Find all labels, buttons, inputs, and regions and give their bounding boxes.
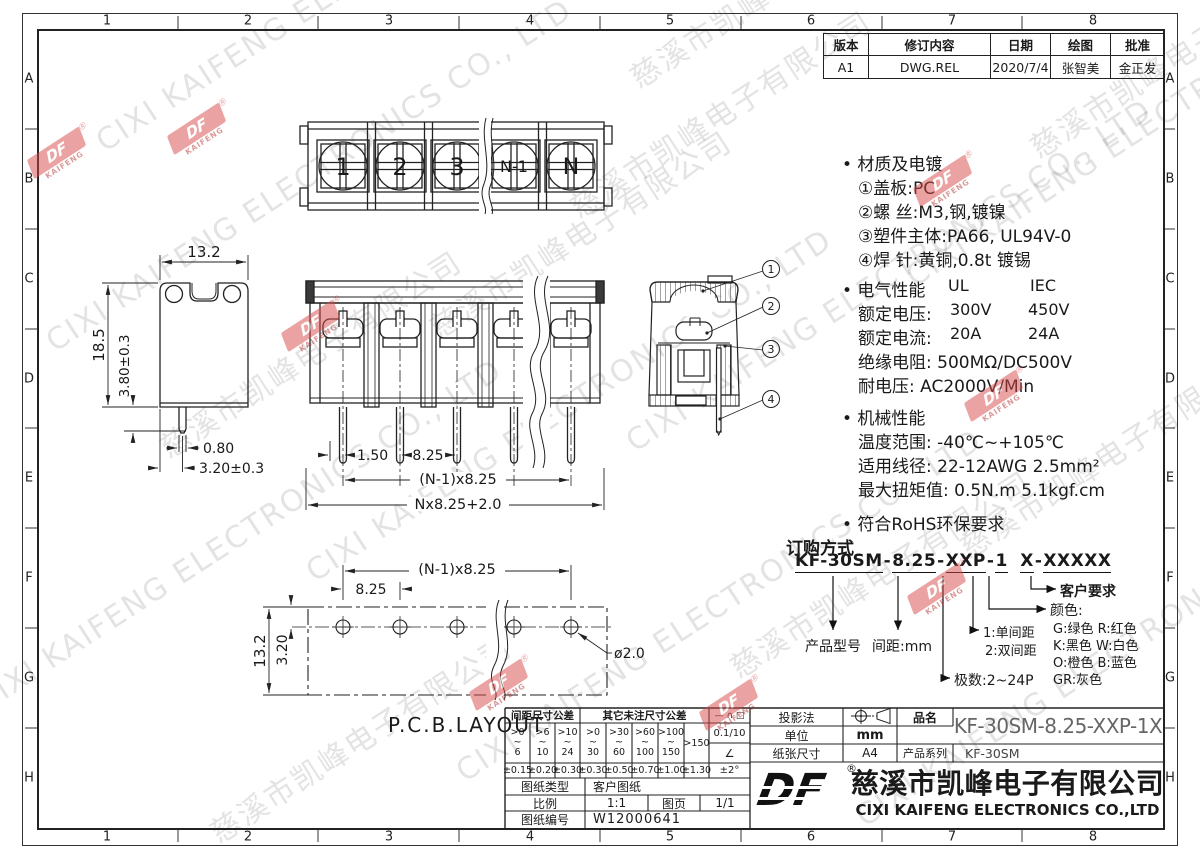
grid-col-label: 4: [526, 830, 534, 845]
grid-col-label: 4: [526, 14, 534, 29]
grid-col-label: 8: [1089, 14, 1097, 29]
range-to: 24: [561, 748, 573, 758]
grid-row-label: E: [1166, 471, 1174, 486]
mechanical-item: 最大扭矩值: 0.5N.m 5.1kgf.cm: [858, 476, 1105, 501]
logo-stripe: [755, 786, 849, 789]
rated-voltage-ul: 300V: [950, 300, 991, 319]
revision-cell: DWG.REL: [869, 56, 991, 78]
ordering-pitch-label: 间距:mm: [872, 636, 932, 656]
grid-row-label: F: [1166, 571, 1173, 586]
engineering-drawing-page: CIXI KAIFENG ELECTRONICS CO., LTD CIXI K…: [0, 0, 1200, 864]
ordering-double-row-label: 2:双间距: [985, 640, 1037, 659]
tolerance-range: >10 ~ 24: [555, 723, 580, 763]
tolerance-value: ±1.00: [658, 763, 684, 778]
drawing-number-label: 图纸编号: [505, 811, 585, 828]
range-to: 10: [536, 748, 548, 758]
revision-table: 版本 修订内容 日期 绘图 批准 A1 DWG.REL 2020/7/4 张智美…: [823, 33, 1165, 79]
code-pitch: 8.25: [892, 551, 936, 573]
grid-col-label: 3: [385, 830, 393, 845]
rated-current-iec: 24A: [1028, 324, 1059, 343]
grid-col-label: 7: [948, 14, 956, 29]
ordering-customer-label: 客户要求: [1060, 581, 1116, 601]
code-row: 1: [995, 551, 1007, 573]
material-item: ④焊 针:黄铜,0.8t 镀锡: [858, 246, 1031, 271]
grid-col-label: 5: [666, 830, 674, 845]
company-name-en: CIXI KAIFENG ELECTRONICS CO.,LTD: [852, 799, 1163, 821]
mechanical-section-title: • 机械性能: [842, 404, 925, 429]
material-item: ③塑件主体:PA66, UL94V-0: [858, 222, 1071, 247]
paper-size-value: A4: [843, 744, 897, 762]
grid-col-label: 6: [807, 14, 815, 29]
grid-row-label: H: [1165, 771, 1175, 786]
grid-row-label: C: [1165, 272, 1174, 287]
tolerance-range: >100 ~ 150: [658, 723, 684, 763]
revision-cell: 2020/7/4: [991, 56, 1051, 78]
grid-col-label: 2: [244, 830, 252, 845]
pitch-tolerance-title: 间距尺寸公差: [505, 708, 580, 723]
tolerance-range: >60 ~ 100: [632, 723, 658, 763]
product-series-label: 产品系列: [897, 744, 953, 762]
code-dash: -: [936, 551, 946, 571]
ordering-model-label: 产品型号: [805, 636, 861, 656]
tolerance-range: >0 ~ 6: [505, 723, 530, 763]
revision-header: 批准: [1111, 34, 1164, 56]
electrical-col-ul: UL: [948, 276, 969, 295]
drawing-type-value: 客户图纸: [585, 778, 758, 795]
grid-row-label: H: [24, 771, 34, 786]
material-section-title: • 材质及电镀: [842, 150, 942, 175]
code-space: [1008, 551, 1020, 571]
unit-value: mm: [843, 726, 897, 744]
code-color: X: [1020, 551, 1034, 573]
grid-row-label: B: [1166, 172, 1175, 187]
rated-voltage-label: 额定电压:: [858, 300, 932, 325]
tolerance-range: >6 ~ 10: [530, 723, 555, 763]
drawing-number-value: W12000641: [585, 811, 758, 828]
grid-col-label: 1: [103, 830, 111, 845]
range-to: 100: [636, 748, 654, 758]
grid-col-label: 2: [244, 14, 252, 29]
grid-col-label: 6: [807, 830, 815, 845]
sheet-label: 图页: [648, 795, 700, 811]
code-dash: -: [883, 551, 893, 571]
angle-tolerance-value: ±2°: [709, 763, 750, 778]
drawing-type-label: 图纸类型: [505, 778, 585, 795]
tolerance-value: ±0.30: [555, 763, 580, 778]
grid-row-label: A: [1166, 72, 1175, 87]
code-series: KF-30SM: [795, 551, 883, 573]
grid-col-label: 7: [948, 830, 956, 845]
ordering-color-title: 颜色:: [1050, 600, 1083, 620]
rohs-note: • 符合RoHS环保要求: [842, 510, 1004, 535]
tolerance-value: ±0.70: [632, 763, 658, 778]
electrical-col-iec: IEC: [1030, 276, 1056, 295]
grid-row-label: G: [1165, 671, 1175, 686]
part-number: KF-30SM-8.25-XXP-1X: [953, 708, 1163, 744]
grid-row-label: C: [24, 272, 33, 287]
rated-current-ul: 20A: [950, 324, 981, 343]
logo-stripe: [755, 797, 849, 800]
ordering-single-row-label: 1:单间距: [983, 622, 1035, 641]
grid-col-label: 3: [385, 14, 393, 29]
scale-label: 比例: [505, 795, 585, 811]
rated-current-label: 额定电流:: [858, 324, 932, 349]
grid-row-label: E: [25, 471, 33, 486]
electrical-section-title: • 电气性能: [842, 276, 925, 301]
tolerance-range: >30 ~ 60: [606, 723, 632, 763]
grid-col-label: 5: [666, 14, 674, 29]
revision-cell: 金正发: [1111, 56, 1164, 78]
grid-row-label: D: [24, 372, 34, 387]
scale-value: 1:1: [585, 795, 648, 811]
revision-header: 版本: [824, 34, 869, 56]
unit-label: 单位: [750, 726, 843, 744]
mechanical-item: 适用线径: 22-12AWG 2.5mm²: [858, 452, 1100, 477]
grid-row-label: F: [25, 571, 32, 586]
insulation-resistance: 绝缘电阻: 500MΩ/DC500V: [858, 348, 1072, 373]
grid-row-label: D: [1165, 372, 1175, 387]
sheet-value: 1/1: [700, 795, 750, 811]
product-series-value: KF-30SM: [953, 744, 1175, 762]
color-option-row: GR:灰色: [1053, 669, 1102, 688]
company-logo: DF: [758, 766, 846, 818]
grid-col-label: 1: [103, 14, 111, 29]
revision-header: 绘图: [1051, 34, 1111, 56]
company-logo-text: DF: [754, 766, 851, 816]
ordering-poles-label: 极数:2~24P: [954, 670, 1034, 690]
code-custom: XXXXX: [1043, 551, 1111, 573]
range-to: 150: [662, 748, 680, 758]
tolerance-value: ±0.30: [580, 763, 606, 778]
part-name-label: 品名: [897, 708, 953, 726]
grid-row-label: G: [24, 671, 34, 686]
tolerance-range: >0 ~ 30: [580, 723, 606, 763]
revision-cell: A1: [824, 56, 869, 78]
tolerance-value: ±0.15: [505, 763, 530, 778]
projection-label: 投影法: [750, 708, 843, 726]
code-dash: -: [1034, 551, 1044, 571]
tolerance-value: ±0.50: [606, 763, 632, 778]
range-to: 60: [613, 748, 625, 758]
grid-col-label: 8: [1089, 830, 1097, 845]
revision-cell: 张智美: [1051, 56, 1111, 78]
grid-row-label: A: [25, 72, 34, 87]
range-to: 30: [587, 748, 599, 758]
paper-size-label: 纸张尺寸: [750, 744, 843, 762]
tolerance-value: ±0.20: [530, 763, 555, 778]
company-name-cn: 慈溪市凯峰电子有限公司: [852, 764, 1163, 800]
angle-symbol: ∠: [709, 743, 750, 763]
tolerance-value: ±1.30: [684, 763, 709, 778]
range-to: 6: [514, 748, 520, 758]
rated-voltage-iec: 450V: [1028, 300, 1069, 319]
mechanical-item: 温度范围: -40℃~+105℃: [858, 428, 1064, 453]
revision-header: 修订内容: [869, 34, 991, 56]
revision-header: 日期: [991, 34, 1051, 56]
other-tolerance-title: 其它未注尺寸公差: [580, 708, 709, 723]
